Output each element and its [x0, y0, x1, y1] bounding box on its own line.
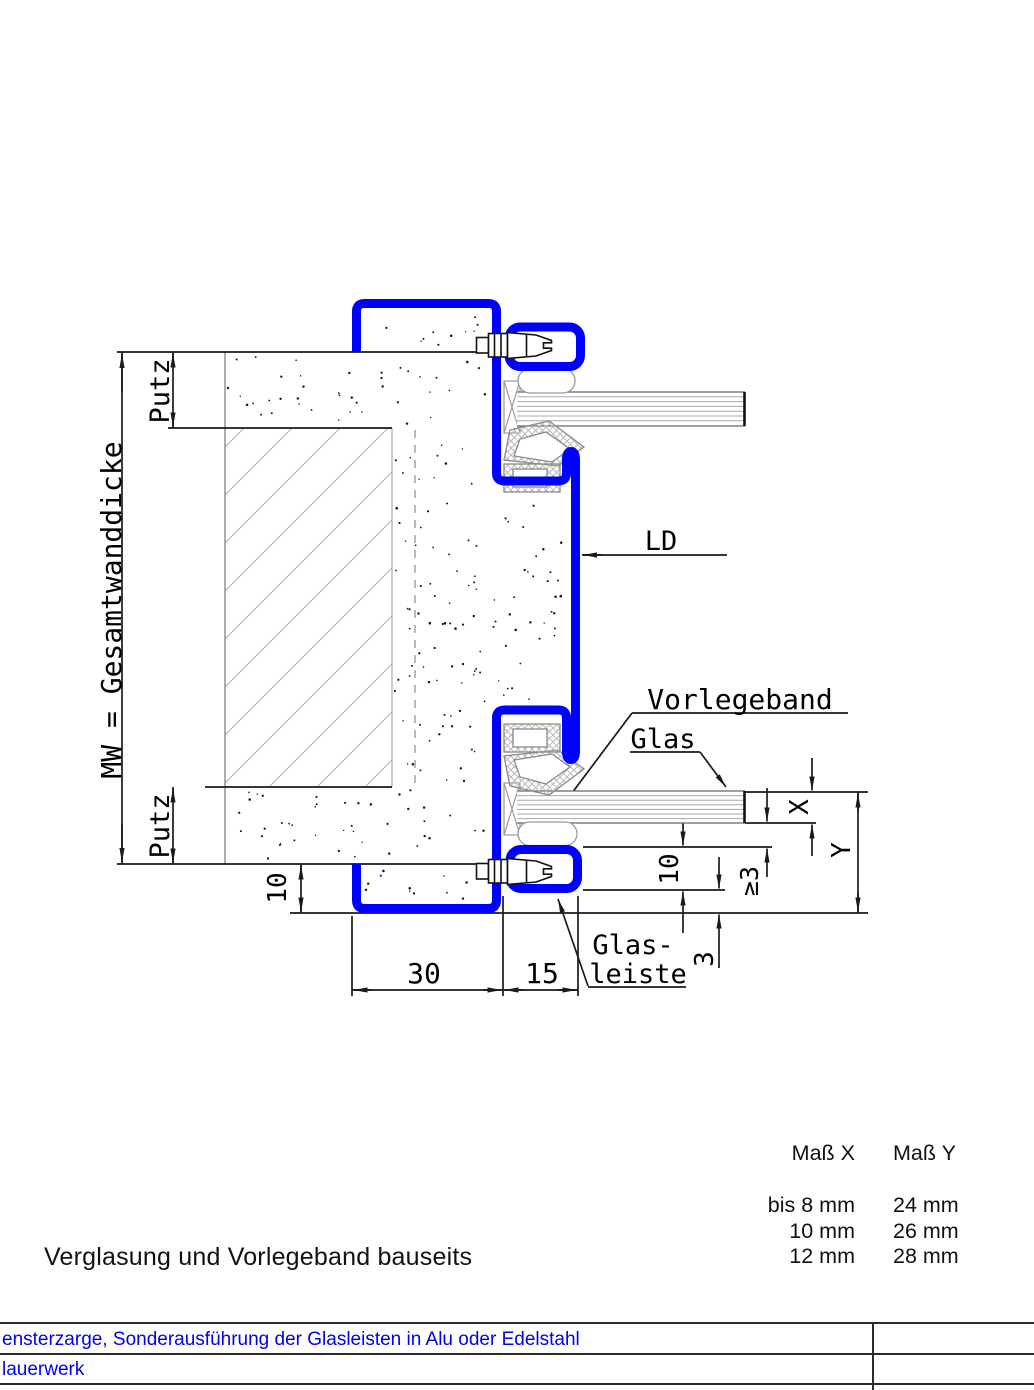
drawing-page: Putz MW = Gesamtwanddicke Putz 10 30 15 …: [0, 0, 1034, 1390]
size-x-value: 10 mm: [700, 1219, 855, 1245]
size-table-header-x: Maß X: [700, 1141, 855, 1166]
title-block-divider: [872, 1322, 874, 1390]
label-ld: LD: [645, 526, 678, 557]
dim-x: X: [785, 799, 815, 815]
dim-30: 30: [407, 957, 441, 990]
size-y-value: 24 mm: [855, 1193, 1000, 1219]
title-block-line: [0, 1322, 1034, 1324]
size-x-value: bis 8 mm: [700, 1193, 855, 1219]
title-block-line: [0, 1353, 1034, 1355]
bead-screw-bottom: [477, 859, 552, 885]
label-glasleiste-2: leiste: [589, 959, 687, 990]
vorlegeband-roll-top: [518, 369, 575, 394]
bead-screw-top: [477, 333, 552, 359]
glazing-parts: [504, 369, 745, 846]
size-y-value: 26 mm: [855, 1219, 1000, 1245]
glass-pane-bottom: [517, 791, 745, 823]
label-mw-gesamtwanddicke: MW = Gesamtwanddicke: [95, 441, 128, 778]
label-glas: Glas: [630, 724, 695, 755]
cad-labels: Putz MW = Gesamtwanddicke Putz 10 30 15 …: [95, 358, 857, 990]
drawing-caption: Verglasung und Vorlegeband bauseits: [44, 1243, 472, 1272]
glass-pane-top: [517, 392, 745, 426]
title-block-line: [0, 1383, 1034, 1385]
title-block-row1: ensterzarge, Sonderausführung der Glasle…: [2, 1329, 580, 1353]
title-block-row2: lauerwerk: [2, 1359, 84, 1383]
size-table-row: bis 8 mm 24 mm: [700, 1193, 1000, 1219]
size-table-row: 10 mm 26 mm: [700, 1219, 1000, 1245]
dim-3: 3: [690, 951, 720, 967]
dim-ge3: ≥3: [735, 866, 764, 896]
label-glasleiste-1: Glas-: [592, 930, 673, 961]
size-table-header-y: Maß Y: [855, 1141, 1000, 1166]
vorlegeband-roll-bottom: [518, 822, 577, 846]
label-putz-bottom: Putz: [145, 793, 176, 858]
size-table-row: 12 mm 28 mm: [700, 1244, 1000, 1270]
label-putz-top: Putz: [145, 358, 176, 423]
size-table: Maß X Maß Y bis 8 mm 24 mm 10 mm 26 mm 1…: [700, 1141, 1000, 1270]
size-x-value: 12 mm: [700, 1244, 855, 1270]
label-vorlegeband: Vorlegeband: [647, 683, 832, 716]
masonry-hatch: [225, 428, 392, 787]
dim-10-right: 10: [655, 853, 685, 884]
dim-10-left: 10: [263, 872, 293, 903]
size-y-value: 28 mm: [855, 1244, 1000, 1270]
dim-15: 15: [525, 957, 559, 990]
dim-y: Y: [827, 842, 857, 858]
